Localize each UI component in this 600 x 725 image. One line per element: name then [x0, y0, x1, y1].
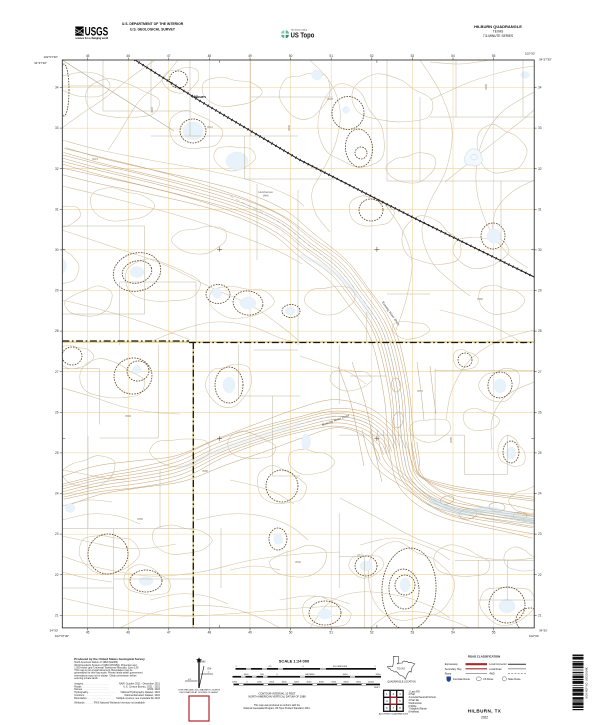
svg-text:6000: 6000 [319, 682, 325, 684]
svg-text:21: 21 [55, 613, 59, 617]
svg-text:3590: 3590 [295, 560, 301, 564]
svg-text:1000: 1000 [257, 682, 263, 684]
svg-text:50: 50 [289, 54, 293, 58]
svg-text:30: 30 [538, 248, 542, 252]
svg-text:102°07'30": 102°07'30" [55, 634, 70, 638]
svg-text:Boundaries....................: Boundaries..............................… [74, 697, 114, 700]
svg-text:Secondary Hwy: Secondary Hwy [445, 668, 463, 671]
svg-text:3590: 3590 [125, 414, 131, 418]
svg-text:45: 45 [86, 631, 90, 635]
svg-text:4000: 4000 [294, 682, 300, 684]
svg-text:34: 34 [55, 86, 59, 90]
svg-text:22: 22 [538, 573, 542, 577]
svg-text:4: 4 [386, 699, 388, 703]
svg-text:3600: 3600 [287, 125, 291, 131]
svg-text:0: 0 [302, 666, 304, 668]
svg-text:2: 2 [393, 692, 395, 696]
svg-text:1: 1 [386, 692, 388, 696]
svg-text:25: 25 [538, 451, 542, 455]
svg-text:QUADRANGLE LOCATION: QUADRANGLE LOCATION [387, 680, 416, 683]
svg-text:1000: 1000 [232, 682, 238, 684]
svg-text:Interstate Route: Interstate Route [453, 678, 471, 681]
svg-text:34°30': 34°30' [50, 629, 59, 633]
svg-text:Hilburn: Hilburn [192, 94, 206, 99]
svg-text:Expressway: Expressway [445, 663, 459, 666]
svg-text:23: 23 [55, 532, 59, 536]
svg-text:52: 52 [370, 631, 374, 635]
svg-text:10000: 10000 [368, 682, 375, 684]
svg-text:2000: 2000 [376, 674, 382, 676]
svg-text:8: 8 [399, 706, 401, 710]
svg-text:23: 23 [538, 532, 542, 536]
svg-text:Wetlands..............FWS Nati: Wetlands..............FWS National Wetla… [74, 702, 145, 705]
svg-text:47: 47 [167, 631, 171, 635]
svg-text:21: 21 [538, 613, 542, 617]
svg-text:28: 28 [55, 329, 59, 333]
svg-text:2000: 2000 [269, 682, 275, 684]
svg-text:GN: GN [207, 667, 211, 671]
svg-text:3585: 3585 [137, 517, 143, 521]
svg-text:5000: 5000 [306, 682, 312, 684]
svg-text:1: 1 [235, 666, 237, 668]
svg-text:29: 29 [538, 289, 542, 293]
svg-text:49: 49 [248, 631, 252, 635]
svg-text:U.S. DEPARTMENT OF THE INTERIO: U.S. DEPARTMENT OF THE INTERIOR [122, 22, 184, 26]
svg-text:3580: 3580 [477, 297, 483, 301]
svg-text:34°37'30": 34°37'30" [34, 61, 47, 65]
svg-text:102°07'30": 102°07'30" [43, 55, 58, 59]
svg-text:102°00': 102°00' [525, 52, 536, 56]
svg-text:29: 29 [55, 289, 59, 293]
svg-text:34: 34 [538, 86, 542, 90]
svg-text:47: 47 [167, 54, 171, 58]
svg-text:7°: 7° [207, 672, 209, 674]
svg-text:Ramp: Ramp [445, 672, 452, 675]
svg-text:3620: 3620 [150, 107, 154, 113]
svg-text:53: 53 [411, 54, 415, 58]
svg-text:8000: 8000 [344, 682, 350, 684]
svg-text:Local Connector: Local Connector [489, 663, 507, 666]
svg-text:46: 46 [126, 631, 130, 635]
svg-text:24: 24 [538, 492, 542, 496]
svg-text:33: 33 [538, 126, 542, 130]
svg-text:55: 55 [492, 631, 496, 635]
svg-text:3615: 3615 [92, 157, 98, 161]
svg-text:HILBURN QUADRANGLE: HILBURN QUADRANGLE [474, 24, 522, 29]
svg-text:52: 52 [370, 54, 374, 58]
svg-text:55: 55 [492, 54, 496, 58]
svg-text:1: 1 [374, 666, 376, 668]
svg-text:TEXAS: TEXAS [397, 667, 405, 670]
svg-text:1000: 1000 [244, 674, 250, 676]
svg-text:ROAD CLASSIFICATION: ROAD CLASSIFICATION [468, 654, 500, 658]
svg-text:MN: MN [201, 660, 205, 664]
svg-text:NGA REF NO. USGSX24K: NGA REF NO. USGSX24K [585, 667, 589, 698]
svg-text:53: 53 [411, 631, 415, 635]
svg-text:Local Road: Local Road [489, 668, 502, 671]
svg-text:National Geospatial Program US: National Geospatial Program US Topo Prod… [244, 707, 311, 710]
svg-text:3610: 3610 [207, 125, 213, 129]
svg-text:0.5: 0.5 [268, 666, 272, 668]
svg-text:54: 54 [451, 54, 455, 58]
svg-text:State Route: State Route [508, 678, 521, 681]
svg-text:NORTH AMERICAN VERTICAL DATUM: NORTH AMERICAN VERTICAL DATUM OF 1988 [248, 695, 306, 699]
svg-text:METERS: METERS [305, 674, 315, 676]
svg-text:26: 26 [55, 410, 59, 414]
svg-text:0: 0 [246, 682, 248, 684]
svg-text:49: 49 [248, 54, 252, 58]
svg-text:TEXAS: TEXAS [493, 30, 503, 34]
svg-text:48: 48 [208, 631, 212, 635]
svg-text:3580: 3580 [202, 469, 208, 473]
svg-text:3: 3 [399, 692, 401, 696]
svg-text:25: 25 [55, 451, 59, 455]
svg-text:entering private lands.: entering private lands. [74, 677, 98, 680]
svg-text:54: 54 [451, 631, 455, 635]
svg-text:46: 46 [126, 54, 130, 58]
svg-text:32: 32 [55, 167, 59, 171]
svg-text:34°37'30": 34°37'30" [539, 58, 552, 62]
svg-text:26: 26 [538, 410, 542, 414]
svg-text:Produced by the United States: Produced by the United States Geological… [74, 657, 145, 661]
svg-text:0°2´: 0°2´ [188, 678, 192, 681]
svg-text:SCALE 1:24 000: SCALE 1:24 000 [279, 659, 310, 664]
svg-text:4WD: 4WD [489, 672, 495, 675]
svg-text:31: 31 [55, 207, 59, 211]
svg-text:HILBURN, TX: HILBURN, TX [468, 709, 502, 714]
svg-text:US Route: US Route [483, 678, 494, 681]
svg-text:22: 22 [55, 573, 59, 577]
svg-text:7: 7 [393, 706, 395, 710]
svg-text:US Topo: US Topo [291, 31, 315, 40]
svg-text:7.5-MINUTE SERIES: 7.5-MINUTE SERIES [483, 34, 513, 38]
svg-text:27: 27 [538, 370, 542, 374]
svg-text:33: 33 [55, 126, 59, 130]
svg-text:28: 28 [538, 329, 542, 333]
svg-text:31: 31 [538, 207, 542, 211]
svg-text:Multiple sources; see metadata: Multiple sources; see metadata file 2022 [116, 697, 160, 700]
svg-text:ADJOINING QUADRANGLES: ADJOINING QUADRANGLES [379, 713, 409, 716]
svg-text:Well: Well [263, 194, 269, 198]
svg-text:U.S. GEOLOGICAL SURVEY: U.S. GEOLOGICAL SURVEY [130, 27, 176, 31]
svg-text:51: 51 [329, 54, 333, 58]
svg-text:34°30': 34°30' [539, 629, 548, 633]
svg-text:2022: 2022 [481, 715, 488, 719]
svg-text:3000: 3000 [282, 682, 288, 684]
svg-text:3590: 3590 [484, 84, 488, 90]
svg-text:102°00': 102°00' [529, 634, 540, 638]
svg-text:27: 27 [55, 370, 59, 374]
svg-text:50: 50 [289, 631, 293, 635]
svg-text:0: 0 [276, 674, 278, 676]
svg-text:24: 24 [55, 492, 59, 496]
svg-text:FEET: FEET [374, 687, 380, 689]
svg-text:6: 6 [386, 706, 388, 710]
svg-text:30: 30 [55, 248, 59, 252]
svg-text:45: 45 [86, 54, 90, 58]
svg-text:8 Halfway: 8 Halfway [409, 711, 420, 714]
svg-text:DECLINATION AT CENTER OF SHEET: DECLINATION AT CENTER OF SHEET [180, 691, 219, 694]
svg-text:32: 32 [538, 167, 542, 171]
svg-text:5: 5 [399, 699, 401, 703]
svg-text:science for a changing world: science for a changing world [75, 36, 108, 40]
svg-text:500: 500 [260, 674, 264, 676]
svg-text:51: 51 [329, 631, 333, 635]
svg-text:7000: 7000 [331, 682, 337, 684]
svg-text:KILOMETERS: KILOMETERS [333, 666, 348, 668]
svg-text:3570: 3570 [417, 389, 423, 393]
svg-text:3560: 3560 [449, 437, 453, 443]
svg-text:3605: 3605 [327, 97, 333, 101]
svg-text:48: 48 [208, 54, 212, 58]
svg-text:1000: 1000 [343, 674, 349, 676]
svg-text:9000: 9000 [356, 682, 362, 684]
